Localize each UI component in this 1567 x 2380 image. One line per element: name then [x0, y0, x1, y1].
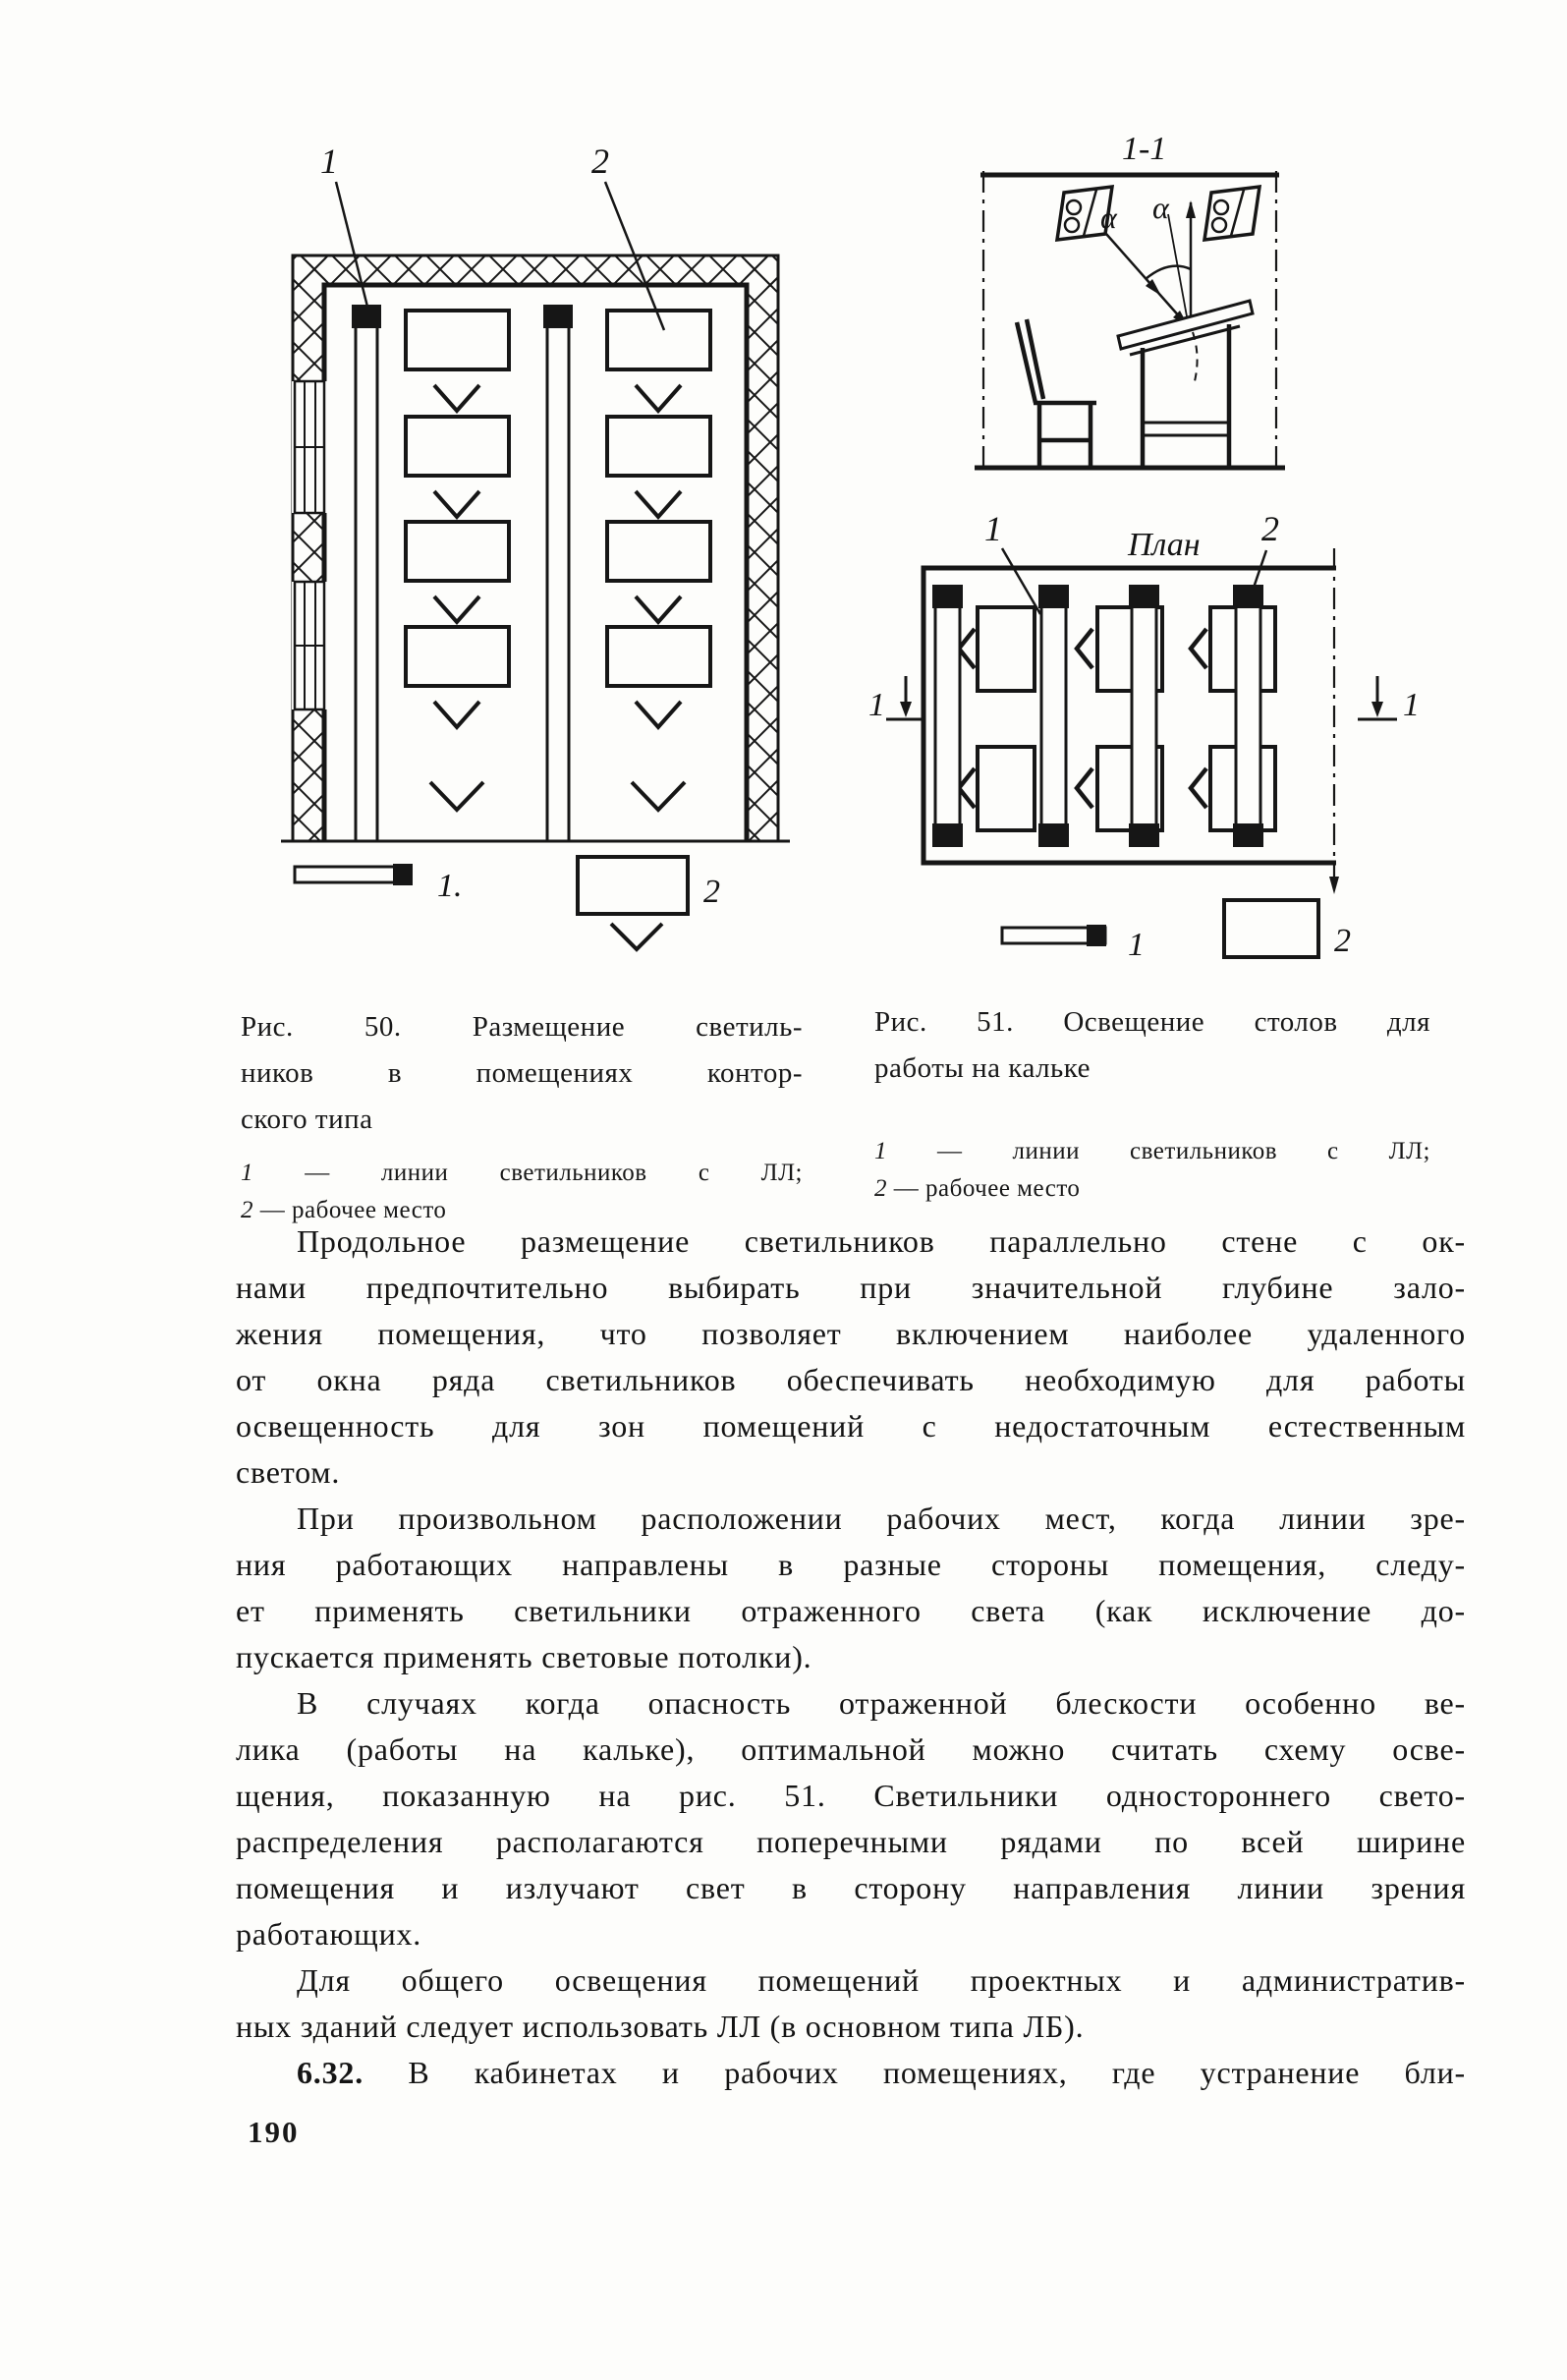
- section-mark-left: 1: [868, 676, 925, 723]
- legend-workplace-symbol: [578, 857, 688, 949]
- body-line: лика (работы на кальке), оптимальной мож…: [236, 1727, 1466, 1773]
- legend-line: 1 — линии светильников с ЛЛ;: [874, 1133, 1430, 1170]
- body-line: пускается применять световые потолки).: [236, 1634, 1466, 1680]
- body-line: светом.: [236, 1449, 1466, 1496]
- vertical-arrow: [1186, 200, 1196, 327]
- luminaire-line: [352, 305, 381, 841]
- legend-label-2: 2: [703, 874, 720, 910]
- body-line: ных зданий следует использовать ЛЛ (в ос…: [236, 2004, 1466, 2050]
- body-line: от окна ряда светильников обеспечивать н…: [236, 1357, 1466, 1403]
- window: [292, 381, 327, 513]
- section-title: 1-1: [1122, 131, 1166, 167]
- body-line: 6.32. В кабинетах и рабочих помещениях, …: [236, 2050, 1466, 2096]
- plan-luminaire-line: [1233, 585, 1263, 847]
- body-line: При произвольном расположении рабочих ме…: [236, 1496, 1466, 1542]
- scanned-book-page: 1 2 1. 2 1-1: [0, 0, 1567, 2380]
- caption-line: работы на кальке: [874, 1046, 1430, 1092]
- body-line: В случаях когда опасность отраженной бле…: [236, 1680, 1466, 1727]
- section-line-arrow: [1329, 877, 1339, 894]
- angle-arc: [1146, 266, 1191, 279]
- angle-side-line: [1168, 214, 1189, 327]
- callout-label-1: 1: [984, 509, 1002, 548]
- plan-luminaire-line: [1129, 585, 1159, 847]
- legend-luminaire-symbol: [1002, 925, 1106, 946]
- window: [292, 582, 327, 709]
- caption-line: Рис. 51. Освещение столов для: [874, 999, 1430, 1046]
- body-text: Продольное размещение светильников парал…: [236, 1218, 1466, 2096]
- legend-label-1: 1.: [437, 868, 463, 904]
- legend-line: 2 — рабочее место: [874, 1170, 1430, 1208]
- plan-title: План: [1127, 527, 1201, 563]
- legend-label-1: 1: [1128, 927, 1145, 963]
- caption-line: ников в помещениях контор-: [241, 1050, 803, 1097]
- body-line: помещения и излучают свет в сторону напр…: [236, 1865, 1466, 1911]
- figure-51-legend-text: 1 — линии светильников с ЛЛ; 2 — рабочее…: [874, 1133, 1430, 1208]
- callout-label-2: 2: [591, 142, 609, 181]
- body-line: нами предпочтительно выбирать при значит…: [236, 1265, 1466, 1311]
- alpha-label: α: [1100, 199, 1118, 235]
- light-ray-arrow: [1106, 234, 1189, 327]
- alpha-label: α: [1152, 190, 1170, 225]
- caption-line: ского типа: [241, 1097, 803, 1143]
- figure-50-drawing: 1 2 1. 2: [236, 128, 825, 992]
- section-mark-right: 1: [1358, 676, 1420, 723]
- callout-label-2: 2: [1261, 509, 1279, 548]
- callout-label-1: 1: [320, 142, 338, 181]
- body-line: распределения располагаются поперечными …: [236, 1819, 1466, 1865]
- page-number: 190: [248, 2115, 300, 2150]
- leader-line: [1002, 548, 1040, 614]
- chair: [1017, 319, 1096, 466]
- section-view: α α: [975, 171, 1285, 472]
- plan-luminaire-line: [1038, 585, 1069, 847]
- section-number: 6.32.: [297, 2055, 364, 2090]
- figure-51-caption: Рис. 51. Освещение столов для работы на …: [874, 999, 1430, 1208]
- legend-label-2: 2: [1334, 923, 1351, 959]
- leader-line: [336, 182, 367, 307]
- workplace-tables-column: [607, 311, 710, 686]
- workplace-tables-column: [406, 311, 509, 686]
- svg-text:1: 1: [868, 687, 885, 723]
- ceiling-luminaire: [1204, 187, 1259, 240]
- body-line: щения, показанную на рис. 51. Светильник…: [236, 1773, 1466, 1819]
- luminaire-line: [543, 305, 573, 841]
- body-line: жения помещения, что позволяет включение…: [236, 1311, 1466, 1357]
- body-line: Для общего освещения помещений проектных…: [236, 1957, 1466, 2004]
- body-line: ния работающих направлены в разные сторо…: [236, 1542, 1466, 1588]
- body-line: работающих.: [236, 1911, 1466, 1957]
- figure-51-drawing: 1-1: [865, 79, 1454, 997]
- legend-workplace-symbol: [1224, 900, 1318, 957]
- body-line: Продольное размещение светильников парал…: [236, 1218, 1466, 1265]
- drafting-table: [1118, 301, 1253, 466]
- figure-50-caption: Рис. 50. Размещение светиль- ников в пом…: [241, 1004, 803, 1229]
- body-line: освещенность для зон помещений с недоста…: [236, 1403, 1466, 1449]
- body-line: ет применять светильники отраженного све…: [236, 1588, 1466, 1634]
- svg-text:1: 1: [1403, 687, 1420, 723]
- legend-luminaire-symbol: [295, 864, 413, 885]
- plan-luminaire-line: [932, 585, 963, 847]
- plan-workplace-tables: [978, 607, 1275, 830]
- legend-line: 1 — линии светильников с ЛЛ;: [241, 1155, 803, 1192]
- caption-line: Рис. 50. Размещение светиль-: [241, 1004, 803, 1050]
